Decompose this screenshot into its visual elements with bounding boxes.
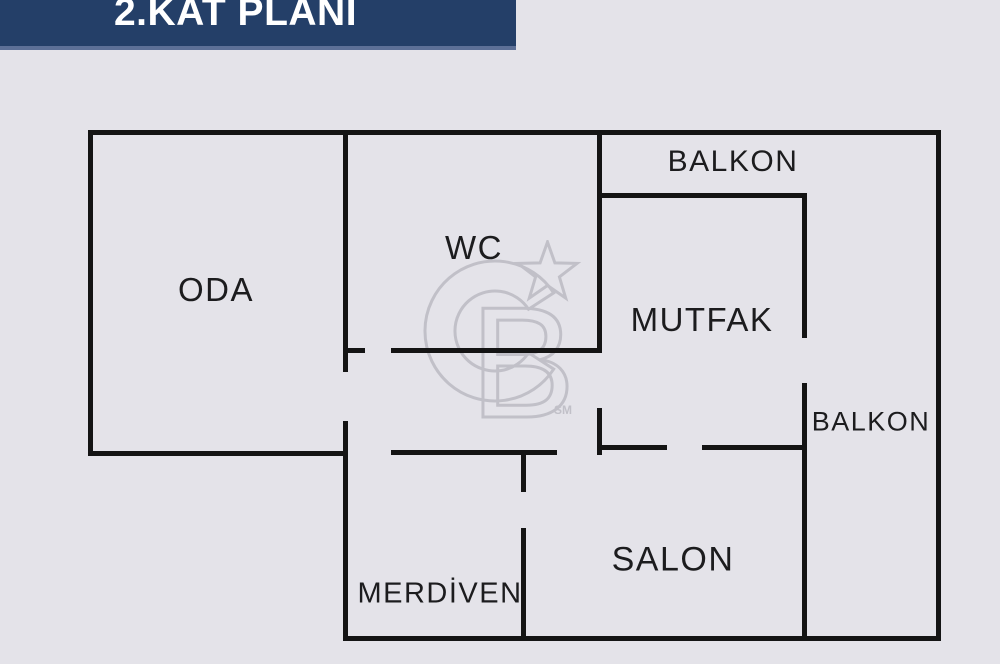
room-label-balkon-right: BALKON — [812, 407, 931, 438]
room-label-oda: ODA — [178, 271, 254, 309]
wall-wc-mutfak-divider — [597, 130, 602, 352]
wall-balkon-top-bottom — [600, 193, 807, 198]
wall-outer-top — [88, 130, 941, 135]
wall-salon-top-right — [702, 445, 807, 450]
floor-plan: B SM ODA WC BALKON MUTFAK BALKON SALON M… — [0, 0, 1000, 664]
room-label-wc: WC — [445, 229, 503, 267]
wall-outer-bottom — [343, 636, 941, 641]
wall-salon-right — [802, 383, 807, 641]
wall-outer-right — [936, 130, 941, 641]
wall-outer-left — [88, 130, 93, 456]
wall-mutfak-right — [802, 193, 807, 338]
wall-wc-bottom-stub — [343, 348, 365, 353]
room-label-salon: SALON — [612, 541, 735, 580]
wall-salon-top-left — [597, 445, 667, 450]
wall-wc-bottom — [391, 348, 602, 353]
room-label-balkon-top: BALKON — [668, 145, 799, 179]
wall-oda-bottom — [88, 451, 348, 456]
floor-plan-page: 2.KAT PLANI B SM ODA WC BALKON MUTFAK BA… — [0, 0, 1000, 664]
wall-mid-vertical-upper — [343, 130, 348, 372]
sm-mark: SM — [554, 403, 572, 417]
wall-hall-bottom — [391, 450, 557, 455]
room-label-merdiven: MERDİVEN — [357, 578, 522, 611]
room-label-mutfak: MUTFAK — [631, 301, 774, 339]
watermark-logo: B SM — [418, 240, 593, 425]
wall-merdiven-right-upper — [521, 453, 526, 492]
wall-mid-vertical-lower — [343, 421, 348, 641]
